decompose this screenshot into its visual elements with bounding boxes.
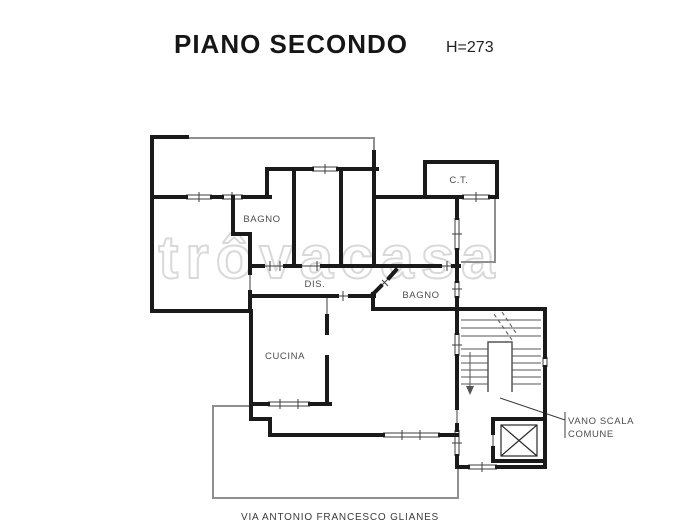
page-title: PIANO SECONDO xyxy=(174,29,408,59)
room-label-vano-scala-2: COMUNE xyxy=(568,429,614,440)
street-address: VIA ANTONIO FRANCESCO GLIANES xyxy=(241,512,439,523)
room-label-cucina: CUCINA xyxy=(265,351,305,362)
room-label-dis: DIS. xyxy=(305,279,326,290)
floorplan-page: trôvacasa xyxy=(0,0,677,531)
room-label-bagno1: BAGNO xyxy=(243,214,280,225)
height-note: H=273 xyxy=(446,39,494,56)
room-label-bagno2: BAGNO xyxy=(402,290,439,301)
room-label-vano-scala-1: VANO SCALA xyxy=(568,416,634,427)
room-label-ct: C.T. xyxy=(449,175,468,186)
watermark-text: trôvacasa xyxy=(158,224,501,291)
floorplan-drawing: trôvacasa xyxy=(0,0,677,531)
